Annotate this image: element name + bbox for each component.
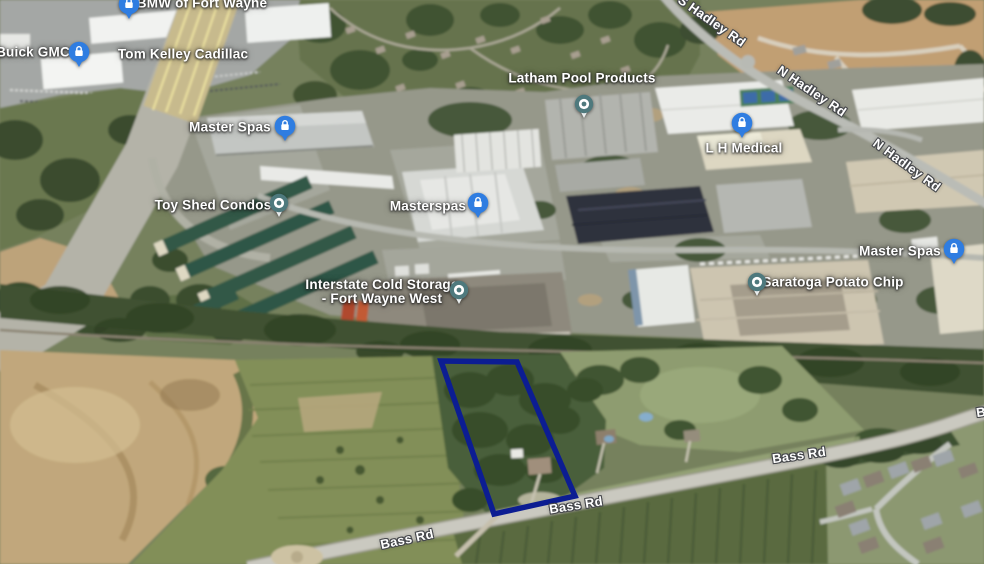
business-lock-pin-master-spas-east[interactable] [943,238,965,271]
label-bmw-of-fort-wayne: BMW of Fort Wayne [137,0,267,11]
label-saratoga-potato-chip: Saratoga Potato Chip [762,275,903,290]
label-latham-pool-products: Latham Pool Products [508,71,655,86]
business-lock-pin-masterspas[interactable] [467,192,489,225]
label-master-spas-east: Master Spas [859,244,941,259]
business-lock-pin-master-spas-north[interactable] [274,115,296,148]
label-buick-gmc: Buick GMC [0,45,70,60]
label-master-spas-north: Master Spas [189,120,271,135]
business-lock-pin-buick-gmc[interactable] [68,41,90,74]
label-toy-shed-condos: Toy Shed Condos [155,198,272,213]
label-masterspas: Masterspas [390,199,466,214]
place-dot-pin-interstate[interactable] [449,280,469,311]
label-line-1: Interstate Cold Storage [305,278,458,292]
aerial-map[interactable]: BMW of Fort Wayne Buick GMC Tom Kelley C… [0,0,984,564]
label-interstate-cold-storage: Interstate Cold Storage - Fort Wayne Wes… [305,278,458,306]
business-lock-pin-l-h-medical[interactable] [731,112,753,145]
place-dot-pin-toy-shed[interactable] [269,193,289,224]
business-lock-pin-bmw[interactable] [118,0,140,26]
place-dot-pin-latham[interactable] [574,94,594,125]
label-line-2: - Fort Wayne West [305,292,458,306]
place-dot-pin-saratoga[interactable] [747,272,767,303]
label-tom-kelley-cadillac: Tom Kelley Cadillac [118,47,248,62]
label-bass-rd-edge: B [975,404,984,420]
